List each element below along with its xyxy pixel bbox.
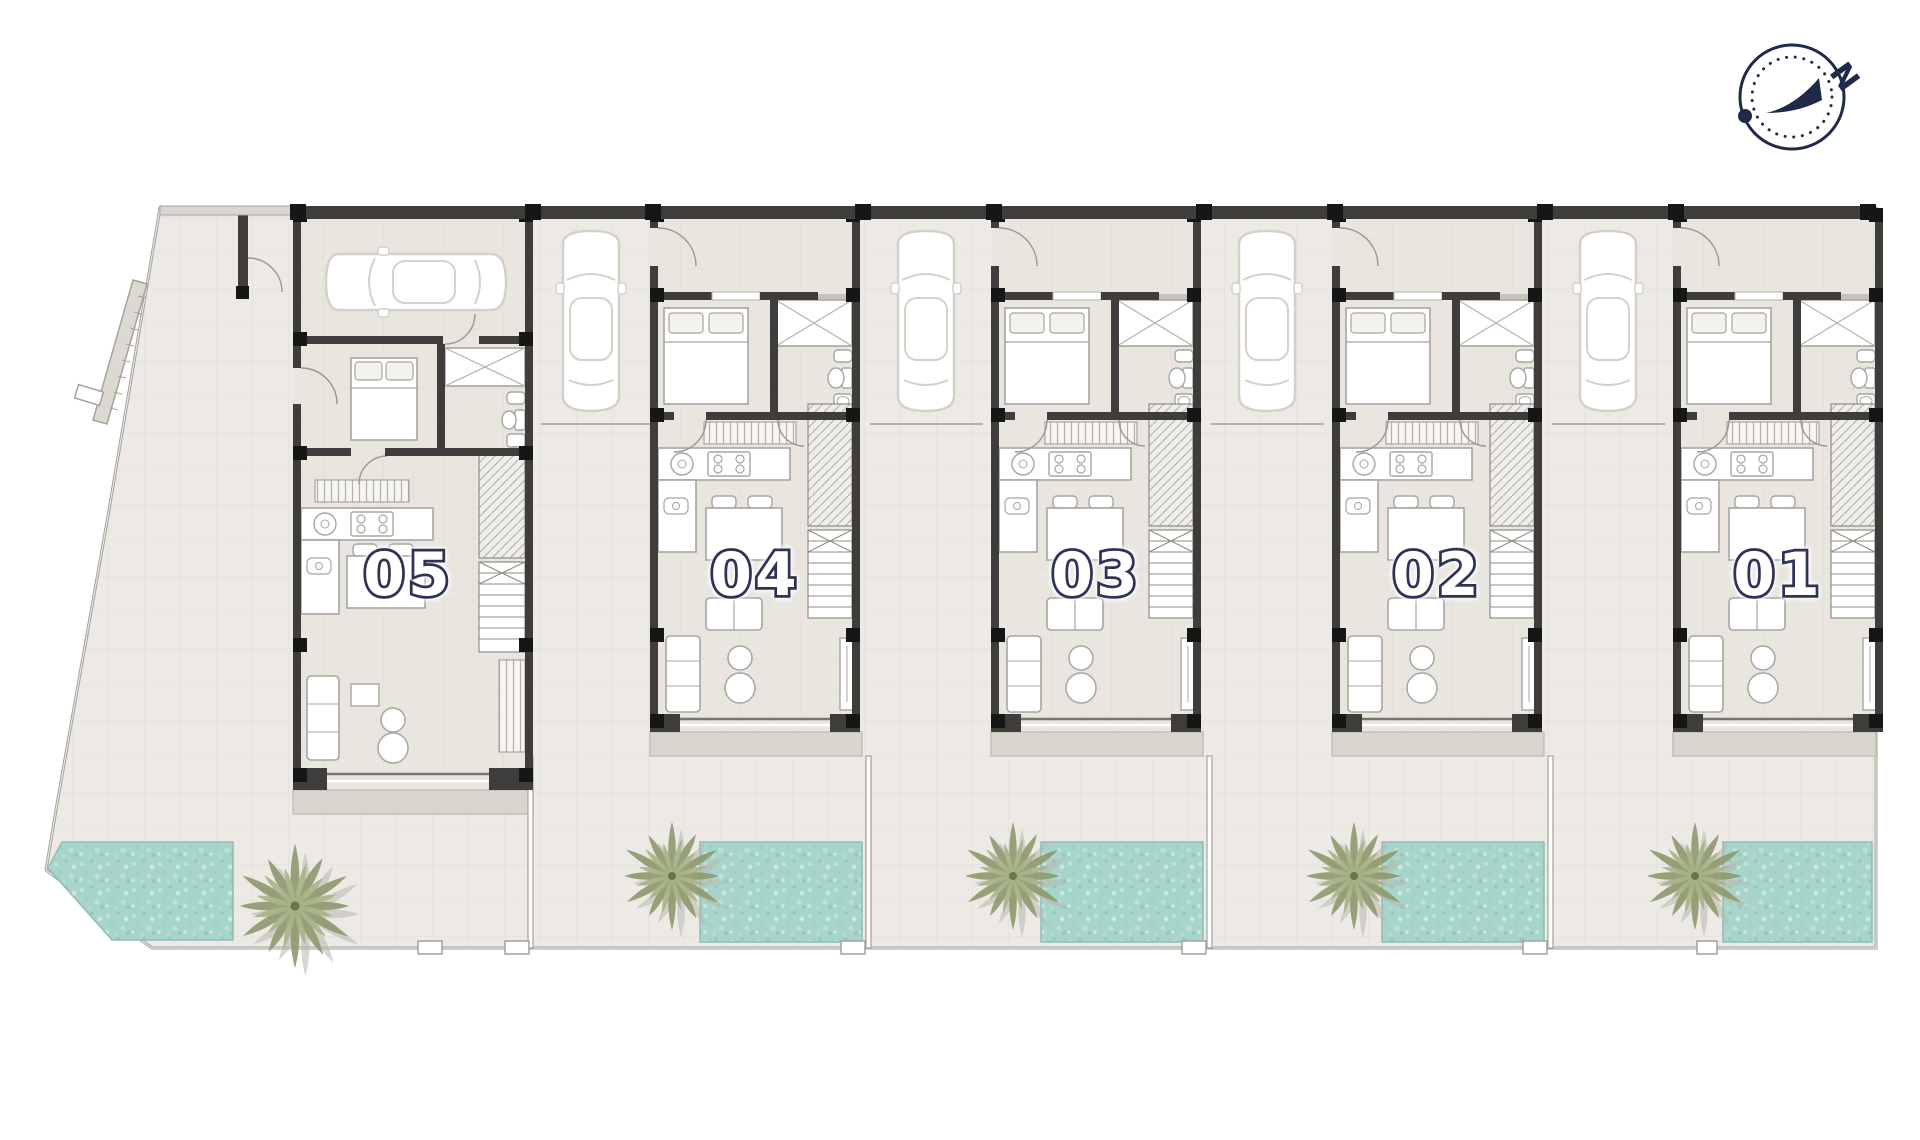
compass-needle (1766, 78, 1822, 113)
unit-01-house (1673, 208, 1883, 732)
unit-label-01: 01 (1733, 540, 1823, 610)
pool-unit-02 (1382, 842, 1544, 942)
car-icon-unit-02 (1232, 231, 1302, 411)
pool-unit-03 (1041, 842, 1203, 942)
unit-label-05: 05 (363, 540, 453, 610)
compass-dot (1738, 109, 1752, 123)
unit-label-03: 03 (1051, 540, 1141, 610)
car-icon-unit-01 (1573, 231, 1643, 411)
unit-03-house (991, 208, 1201, 732)
unit-05-house (293, 208, 533, 790)
terrace-unit-03 (991, 732, 1203, 756)
unit-02-house (1332, 208, 1542, 732)
compass-icon: N (1738, 45, 1866, 149)
pool-unit-04 (700, 842, 862, 942)
car-icon-unit-04 (556, 231, 626, 411)
pool-unit-05 (48, 842, 233, 940)
terrace-unit-05 (293, 790, 533, 814)
unit-04-house (650, 208, 860, 732)
terrace-unit-02 (1332, 732, 1544, 756)
compass-north-label: N (1822, 56, 1866, 98)
terrace-unit-01 (1673, 732, 1876, 756)
car-icon-unit-03 (891, 231, 961, 411)
floor-plan-page: 05 04 03 02 01 N (0, 0, 1920, 1140)
terrace-unit-04 (650, 732, 862, 756)
street-wall (160, 204, 1876, 220)
unit-label-04: 04 (710, 540, 800, 610)
floor-plan-canvas: 05 04 03 02 01 N (0, 0, 1920, 1140)
pool-unit-01 (1723, 842, 1872, 942)
unit-label-02: 02 (1392, 540, 1482, 610)
